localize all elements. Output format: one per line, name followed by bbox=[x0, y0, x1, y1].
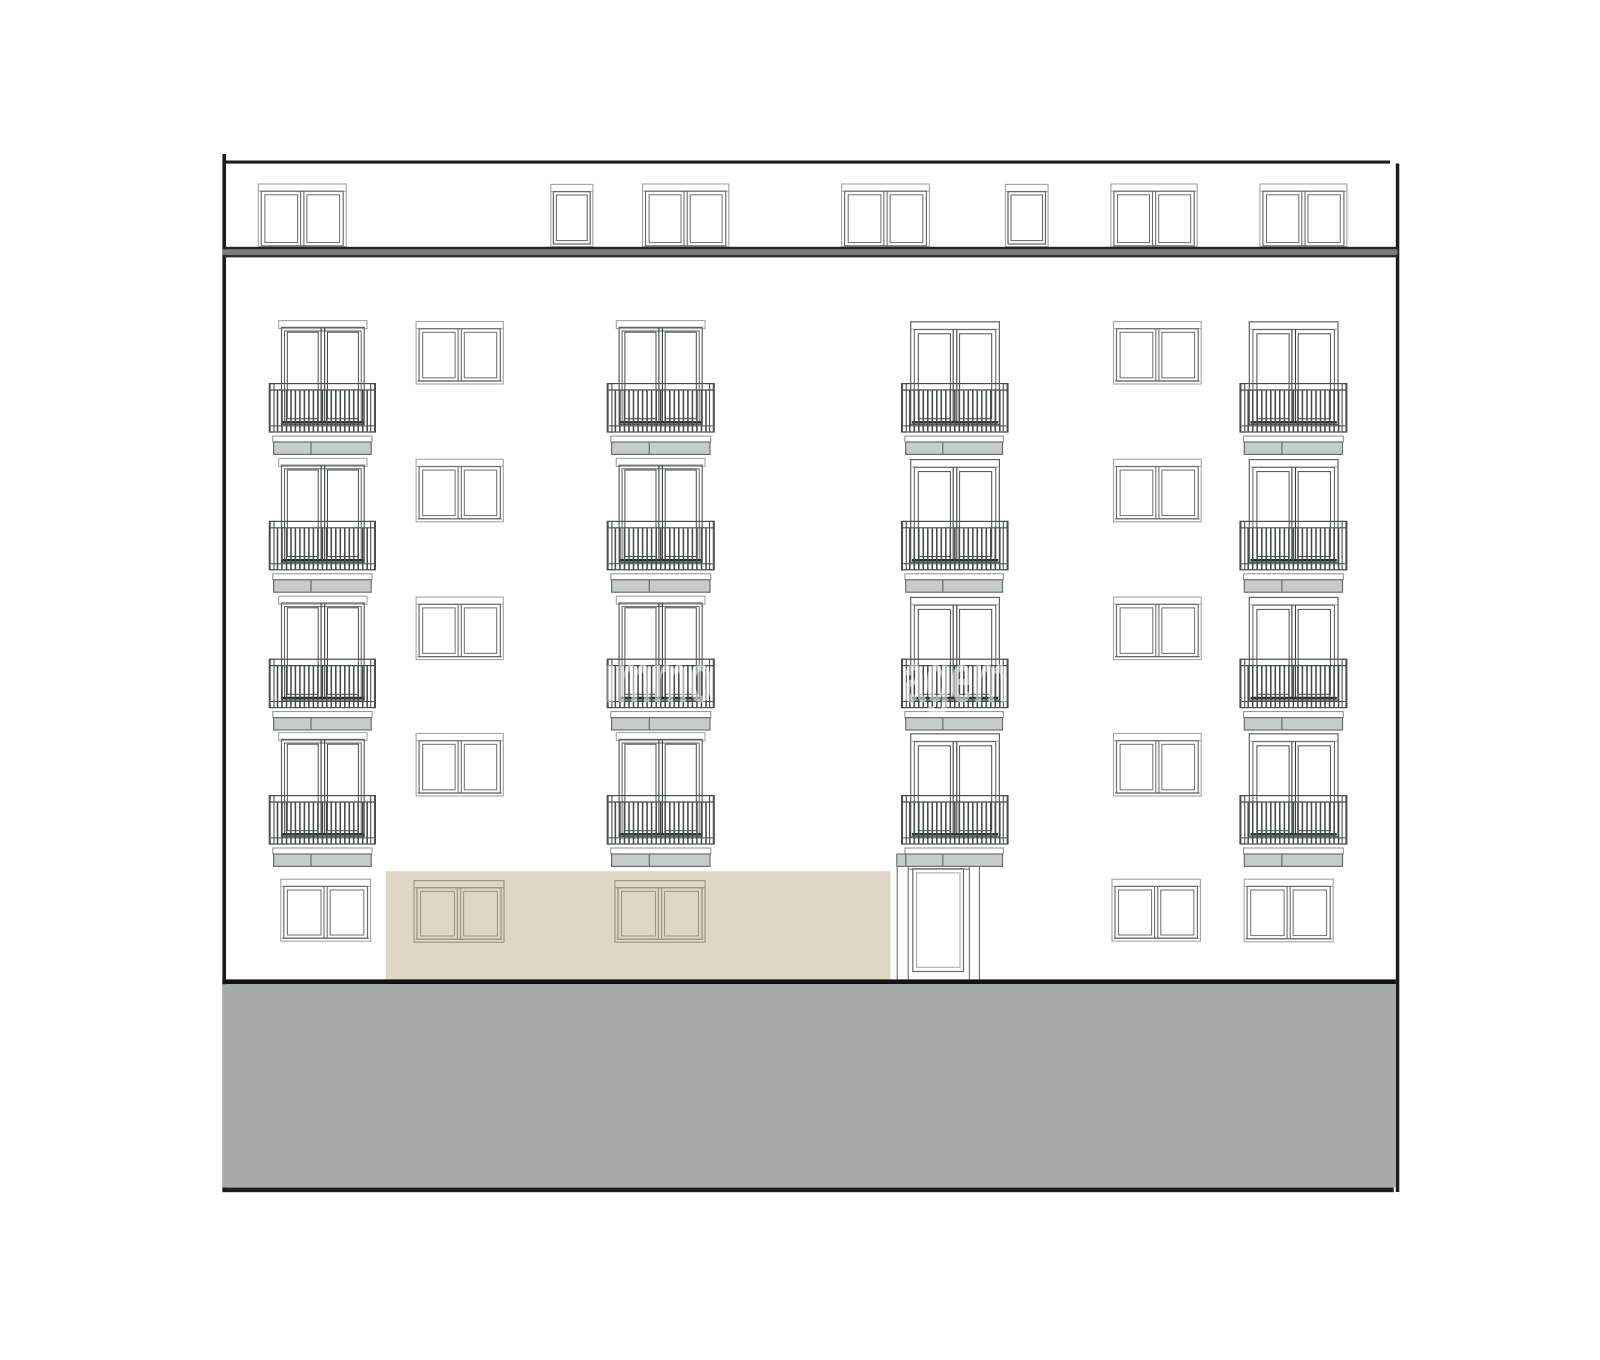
svg-text:gbimmobilienmanagement: gbimmobilienmanagement bbox=[555, 639, 1070, 717]
